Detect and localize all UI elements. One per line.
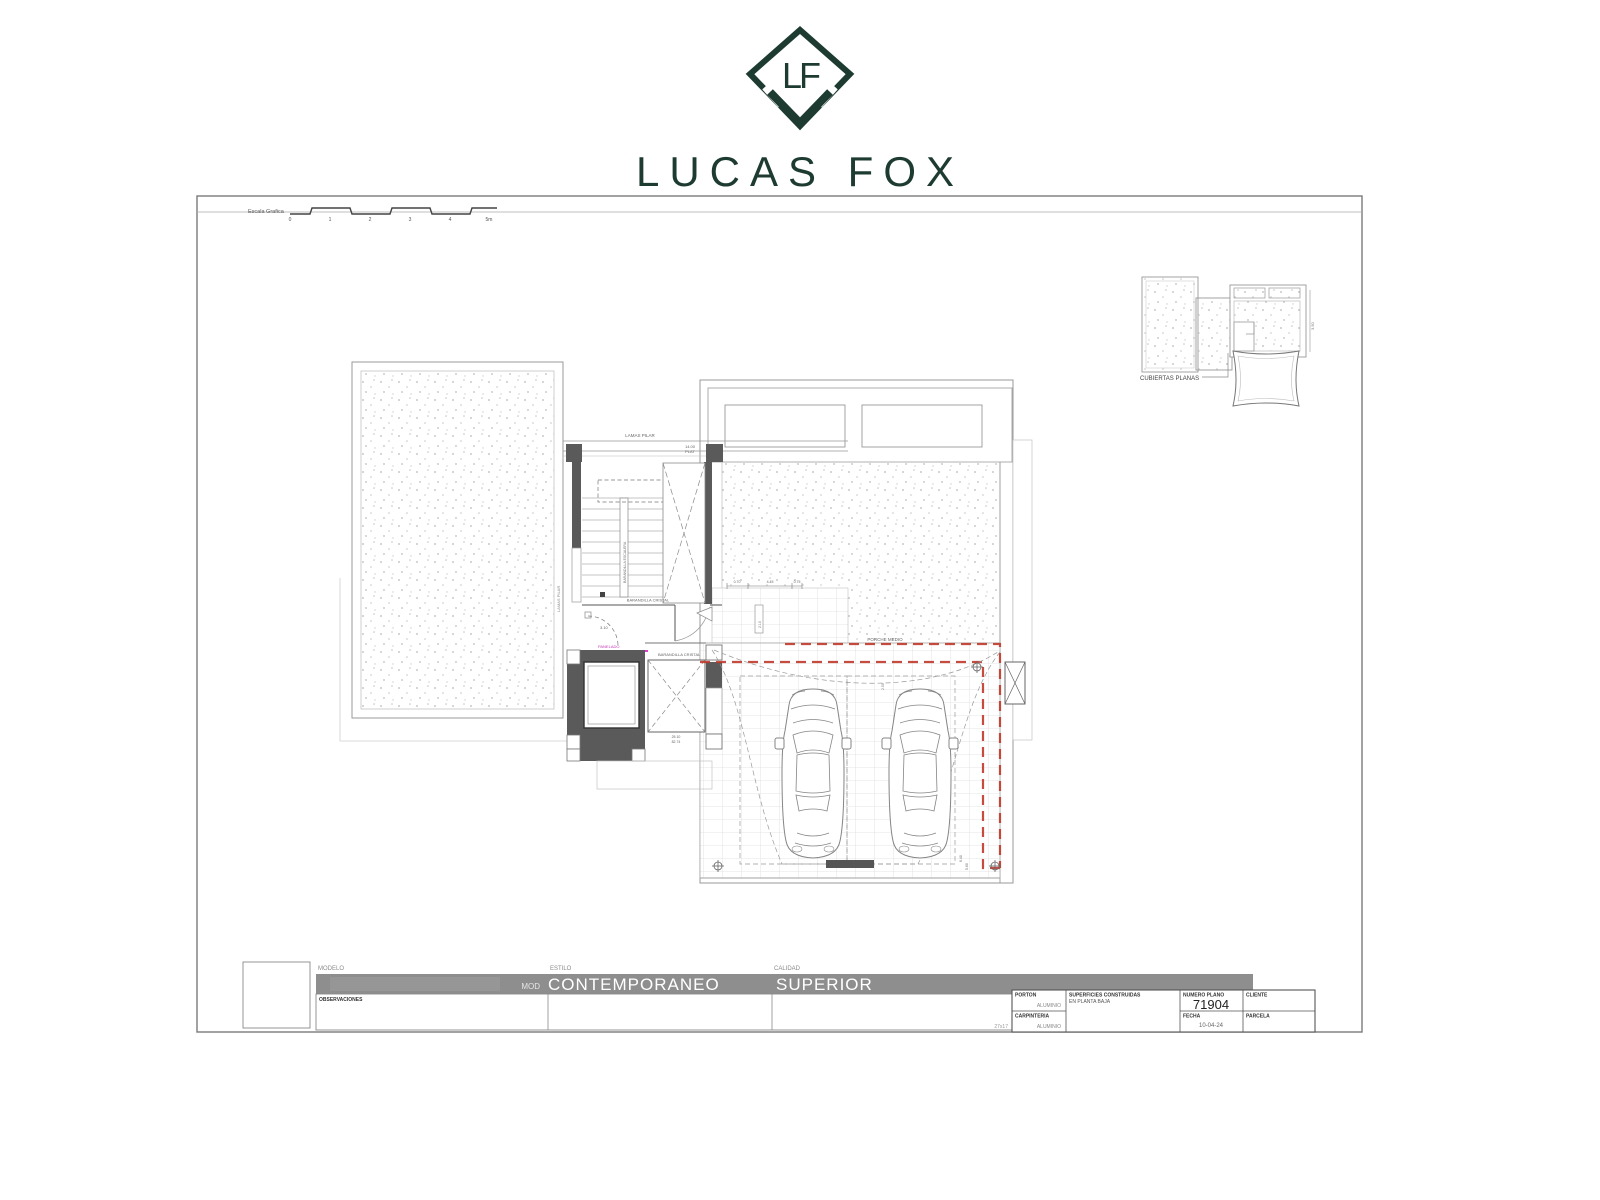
- scale-tick: 4: [449, 217, 452, 223]
- scale-tick: 1: [329, 217, 332, 223]
- label-barandilla-escalera: BARANDILLA ESCALERA: [623, 541, 627, 583]
- label-barandilla-cristal-1: BARANDILLA CRISTAL: [627, 598, 670, 603]
- label-porton: PORTON: [1015, 993, 1037, 999]
- label-superficies-2: EN PLANTA BAJA: [1069, 999, 1111, 1005]
- corner-note: 27x17: [994, 1024, 1008, 1030]
- style-value: CONTEMPORANEO: [548, 975, 720, 994]
- entry-dim: 0.75: [794, 580, 801, 584]
- shaft-x: [648, 660, 705, 732]
- label-fecha: FECHA: [1183, 1014, 1201, 1020]
- bar-mod-prefix: MOD: [521, 982, 540, 991]
- label-corner-dim-1: 6.40: [959, 855, 963, 862]
- label-plat: PLAT: [685, 449, 695, 454]
- label-modelo: MODELO: [318, 966, 344, 972]
- wall-pillar: [566, 444, 582, 462]
- value-numero-plano: 71904: [1193, 997, 1229, 1012]
- entry-v-dim: 2.10: [758, 621, 762, 628]
- label-lamas-pilar: LAMAS PILAR: [625, 433, 655, 438]
- label-shaft-dim-1: 25.10: [672, 735, 681, 739]
- elevator: [567, 650, 645, 749]
- pillar-x: [1005, 662, 1025, 704]
- label-porch-v-dim: 2.50: [881, 683, 885, 690]
- value-carpinteria: ALUMINIO: [1037, 1024, 1061, 1030]
- scale-bar-label: Escala Grafica: [248, 209, 285, 215]
- floor-plan-svg: Escala Grafica 0 1 2 3 4 5m: [0, 0, 1600, 1200]
- label-inset-dim: 3.50: [1310, 321, 1315, 330]
- scale-tick: 3: [409, 217, 412, 223]
- label-cliente: CLIENTE: [1246, 993, 1268, 999]
- label-cubiertas-planas: CUBIERTAS PLANAS: [1140, 376, 1199, 382]
- plan-sheet-page: LF LUCAS FOX A Dils company: [0, 0, 1600, 1200]
- title-block-logo-box: [243, 962, 310, 1028]
- label-calidad: CALIDAD: [774, 966, 801, 972]
- quality-value: SUPERIOR: [776, 975, 873, 994]
- value-porton: ALUMINIO: [1037, 1003, 1061, 1009]
- awning-shape: [1233, 351, 1299, 406]
- label-carpinteria: CARPINTERIA: [1015, 1014, 1050, 1020]
- label-barandilla-cristal-2: BARANDILLA CRISTAL: [658, 652, 701, 657]
- stair-void-x: [663, 463, 705, 603]
- label-porche-medio: PORCHE MEDIO: [867, 637, 903, 642]
- scale-tick: 5m: [486, 217, 493, 223]
- label-door-dim: 3.10: [600, 625, 609, 630]
- scale-tick: 2: [369, 217, 372, 223]
- label-superficies-1: SUPERFICIES CONSTRUIDAS: [1069, 993, 1141, 999]
- scale-tick: 0: [289, 217, 292, 223]
- wall-segment: [572, 462, 581, 548]
- entry-dim: 0.70: [734, 580, 741, 584]
- label-lamas-pilar-side: LAMAS PILAR: [556, 586, 561, 612]
- wall-pillar: [706, 444, 723, 462]
- label-shaft-dim-2: 82.74: [672, 740, 681, 744]
- label-panelado: PANELADO: [598, 644, 620, 649]
- label-observaciones: OBSERVACIONES: [319, 997, 363, 1003]
- entry-label-bar: [826, 860, 874, 868]
- model-name-blur: [330, 977, 500, 991]
- label-corner-dim-2: 5.60: [965, 863, 969, 870]
- entry-dim: 4.45: [767, 580, 774, 584]
- info-table: PORTON ALUMINIO CARPINTERIA ALUMINIO SUP…: [994, 990, 1315, 1032]
- label-parcela: PARCELA: [1246, 1014, 1270, 1020]
- value-fecha: 10-04-24: [1199, 1023, 1224, 1029]
- skylight-2: [862, 405, 982, 447]
- label-estilo: ESTILO: [550, 966, 572, 972]
